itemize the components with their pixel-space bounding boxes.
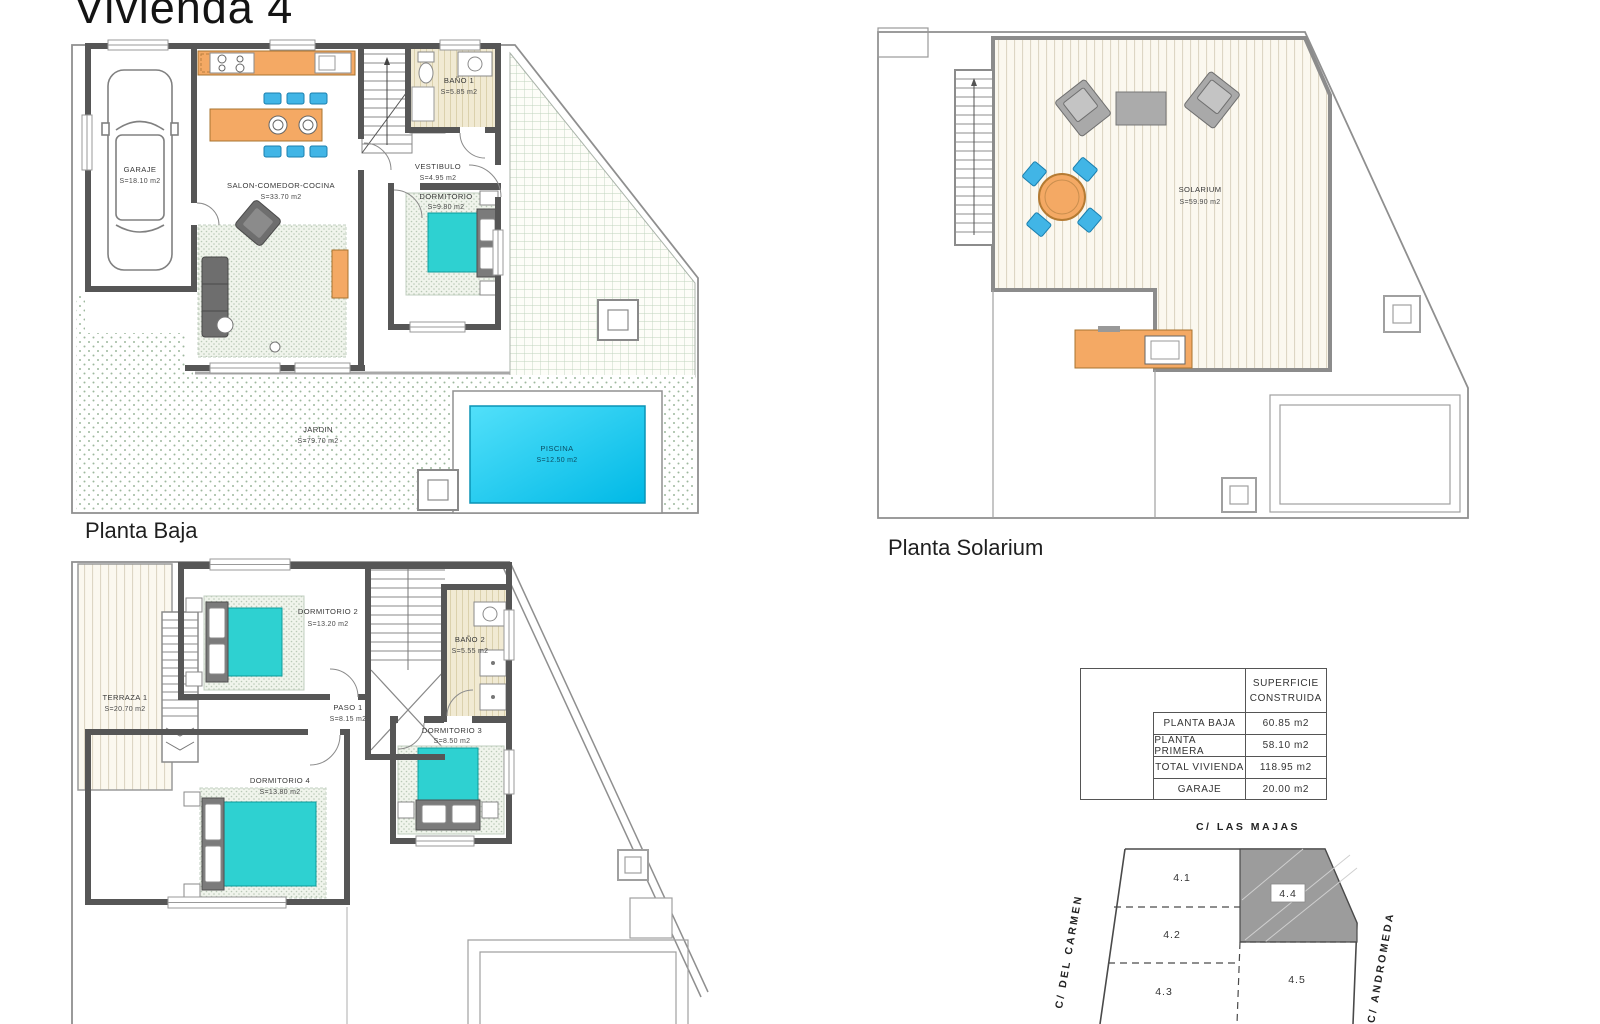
surface-table-header-spacer xyxy=(1081,669,1245,712)
planta-baja-plan: GARAJE S=18.10 m2 SALON-COMEDOR-COCINA S… xyxy=(60,25,710,525)
table-row: PLANTA BAJA 60.85 m2 xyxy=(1081,712,1326,734)
piscina-label: PISCINA xyxy=(540,444,574,453)
vestibulo-area: S=4.95 m2 xyxy=(420,175,457,182)
street-del-carmen-label: C/ DEL CARMEN xyxy=(1053,893,1085,1009)
terraza-area: S=20.70 m2 xyxy=(105,706,146,713)
kitchen-island xyxy=(210,109,322,141)
street-andromeda-label: C/ ANDROMEDA xyxy=(1365,911,1396,1024)
jardin-area: S=79.70 m2 xyxy=(298,438,339,445)
dorm4-label: DORMITORIO 4 xyxy=(250,776,310,785)
plot-4-2-label: 4.2 xyxy=(1163,929,1181,941)
stairwell xyxy=(955,70,993,245)
plot-4-3-label: 4.3 xyxy=(1155,986,1173,998)
planta-solarium-plan: SOLARIUM S=59.90 m2 xyxy=(870,20,1480,525)
kitchen-counter xyxy=(198,51,355,75)
bath1-area: S=5.85 m2 xyxy=(441,89,478,96)
floor-lamp xyxy=(270,342,280,352)
plot-4-5-label: 4.5 xyxy=(1288,974,1306,986)
table-row: PLANTA PRIMERA 58.10 m2 xyxy=(1081,734,1326,756)
salon-label: SALON-COMEDOR-COCINA xyxy=(227,181,336,190)
surface-header-line1: SUPERFICIE xyxy=(1253,676,1319,691)
toilet xyxy=(418,52,434,83)
solarium-counter xyxy=(1075,326,1192,368)
planta-solarium-caption: Planta Solarium xyxy=(888,535,1043,561)
site-plan: C/ LAS MAJAS C/ DEL CARMEN C/ ANDROMEDA … xyxy=(1020,780,1420,1024)
row-label-planta-primera: PLANTA PRIMERA xyxy=(1153,734,1244,756)
dorm3-area: S=8.50 m2 xyxy=(434,738,471,745)
plan-sheet: Vivienda 4 xyxy=(0,0,1600,1024)
lower-roof-outlines xyxy=(347,850,688,1024)
row-label-total-vivienda: TOTAL VIVIENDA xyxy=(1153,756,1244,778)
dorm4-area: S=13.80 m2 xyxy=(260,789,301,796)
dorm2-bed xyxy=(186,598,282,686)
row-value-planta-primera: 58.10 m2 xyxy=(1245,734,1326,756)
row-value-planta-baja: 60.85 m2 xyxy=(1245,712,1326,734)
vestibulo-label: VESTIBULO xyxy=(415,162,461,171)
tv-bench xyxy=(332,250,348,298)
row-label-planta-baja: PLANTA BAJA xyxy=(1153,712,1244,734)
garage-area: S=18.10 m2 xyxy=(120,178,161,185)
garage-label: GARAJE xyxy=(124,165,157,174)
terraza-label: TERRAZA 1 xyxy=(103,693,148,702)
boundary-diagonal-outer xyxy=(510,562,708,992)
planta-baja-caption: Planta Baja xyxy=(85,518,198,544)
surface-table-header-row: SUPERFICIE CONSTRUIDA xyxy=(1081,669,1326,712)
plot-4-4-label: 4.4 xyxy=(1279,888,1297,900)
dormitorio-label: DORMITORIO xyxy=(419,192,472,201)
side-table xyxy=(217,317,233,333)
surface-table-header-cell: SUPERFICIE CONSTRUIDA xyxy=(1245,669,1326,712)
salon-area: S=33.70 m2 xyxy=(261,194,302,201)
paso-label: PASO 1 xyxy=(333,703,362,712)
parcel-divisions xyxy=(1108,907,1240,1024)
solarium-label: SOLARIUM xyxy=(1179,185,1222,194)
solarium-area: S=59.90 m2 xyxy=(1180,199,1221,206)
surface-header-line2: CONSTRUIDA xyxy=(1250,691,1322,706)
bath1-label: BAÑO 1 xyxy=(444,76,474,85)
row-value-total-vivienda: 118.95 m2 xyxy=(1245,756,1326,778)
plot-4-1-label: 4.1 xyxy=(1173,872,1191,884)
terraza-floor xyxy=(78,564,172,790)
paso-area: S=8.15 m2 xyxy=(330,716,367,723)
street-las-majas-label: C/ LAS MAJAS xyxy=(1196,821,1300,833)
jardin-label: JARDIN xyxy=(303,425,333,434)
dorm4-bed xyxy=(184,792,316,898)
planta-primera-plan: TERRAZA 1 S=20.70 m2 DORMITORIO 2 S=13.2… xyxy=(60,550,710,1024)
shower xyxy=(412,87,434,121)
dorm3-label: DORMITORIO 3 xyxy=(422,726,482,735)
piscina-area: S=12.50 m2 xyxy=(537,457,578,464)
plot-4-4-highlighted: 4.4 xyxy=(1240,849,1357,942)
table-row: TOTAL VIVIENDA 118.95 m2 xyxy=(1081,756,1326,778)
dorm2-area: S=13.20 m2 xyxy=(308,621,349,628)
bath1-sink xyxy=(458,52,492,76)
patio-table xyxy=(1116,92,1166,125)
dorm2-label: DORMITORIO 2 xyxy=(298,607,358,616)
bath2-label: BAÑO 2 xyxy=(455,635,485,644)
bath2-area: S=5.55 m2 xyxy=(452,648,489,655)
dormitorio-area: S=9.80 m2 xyxy=(428,204,465,211)
